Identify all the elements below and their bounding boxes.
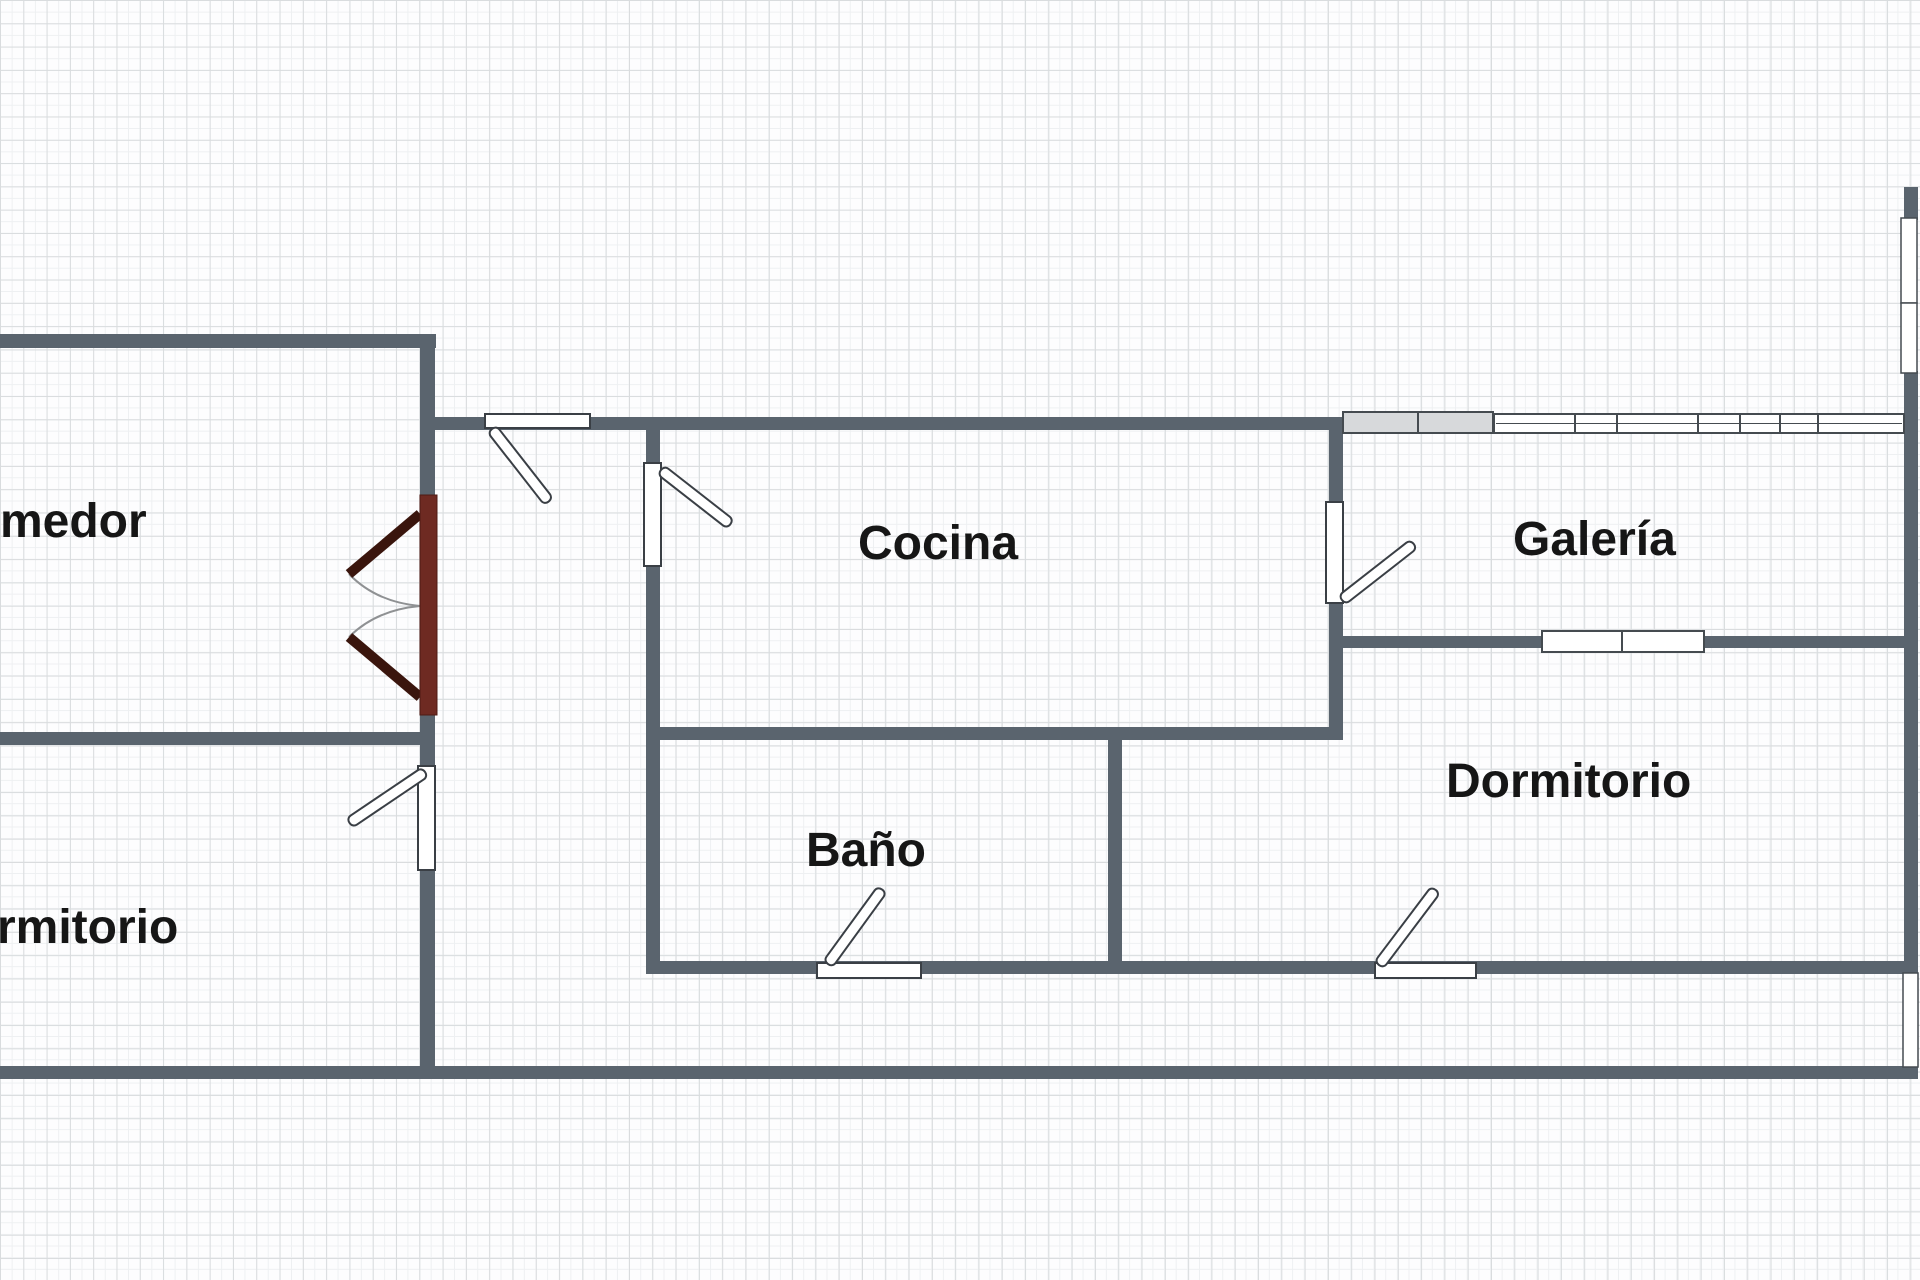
room-label-dormitorio: Dormitorio (1446, 755, 1691, 808)
door-hall-top-leaf-panel (488, 426, 553, 505)
door-hall-top-opening (485, 414, 590, 428)
window-right-lower (1901, 303, 1917, 373)
wall-cocina-bottom (646, 727, 1343, 740)
door-hall-top-leaf (488, 426, 553, 505)
door-bano-leaf (824, 886, 887, 967)
wall-outer-bottom (0, 1066, 1918, 1079)
double-door-comedor-bar (420, 495, 437, 715)
door-dormitorio-left-leaf (346, 767, 428, 827)
door-galeria-opening (1326, 502, 1343, 603)
door-galeria-leaf (1339, 540, 1417, 605)
door-dormitorio-opening (1375, 963, 1476, 978)
double-door-comedor-leaf-1 (349, 637, 420, 697)
wall-comedor-dormitorio (0, 732, 424, 745)
door-dormitorio-leaf-panel (1375, 887, 1440, 969)
window-right-upper (1901, 218, 1917, 303)
wall-bano-right (1108, 727, 1122, 974)
door-cocina-opening (644, 463, 661, 566)
room-label-bano: Baño (806, 824, 926, 877)
door-cocina-leaf-panel (658, 466, 734, 529)
door-dormitorio-leaf (1375, 887, 1440, 969)
wall-top-left (0, 334, 436, 348)
double-door-comedor-leaf-0 (349, 514, 420, 574)
floorplan-svg: ComedorCocinaGaleríaBañoDormitorioDormit… (0, 0, 1920, 1280)
double-door-comedor-arc-1 (349, 606, 420, 637)
door-cocina-leaf (658, 466, 734, 529)
opening-right-bottom (1903, 973, 1918, 1067)
room-label-comedor: Comedor (0, 495, 147, 548)
floorplan-canvas: ComedorCocinaGaleríaBañoDormitorioDormit… (0, 0, 1920, 1280)
double-door-comedor-arc-0 (349, 574, 420, 606)
door-galeria-leaf-panel (1339, 540, 1417, 605)
wall-right-main (1904, 371, 1918, 973)
door-dormitorio-left-leaf-panel (346, 767, 428, 827)
room-label-galeria: Galería (1513, 513, 1676, 566)
room-label-cocina: Cocina (858, 517, 1018, 570)
wall-right-top-cap (1904, 187, 1918, 220)
door-bano-leaf-panel (824, 886, 887, 967)
room-label-dormitorio-2: Dormitorio (0, 901, 178, 954)
